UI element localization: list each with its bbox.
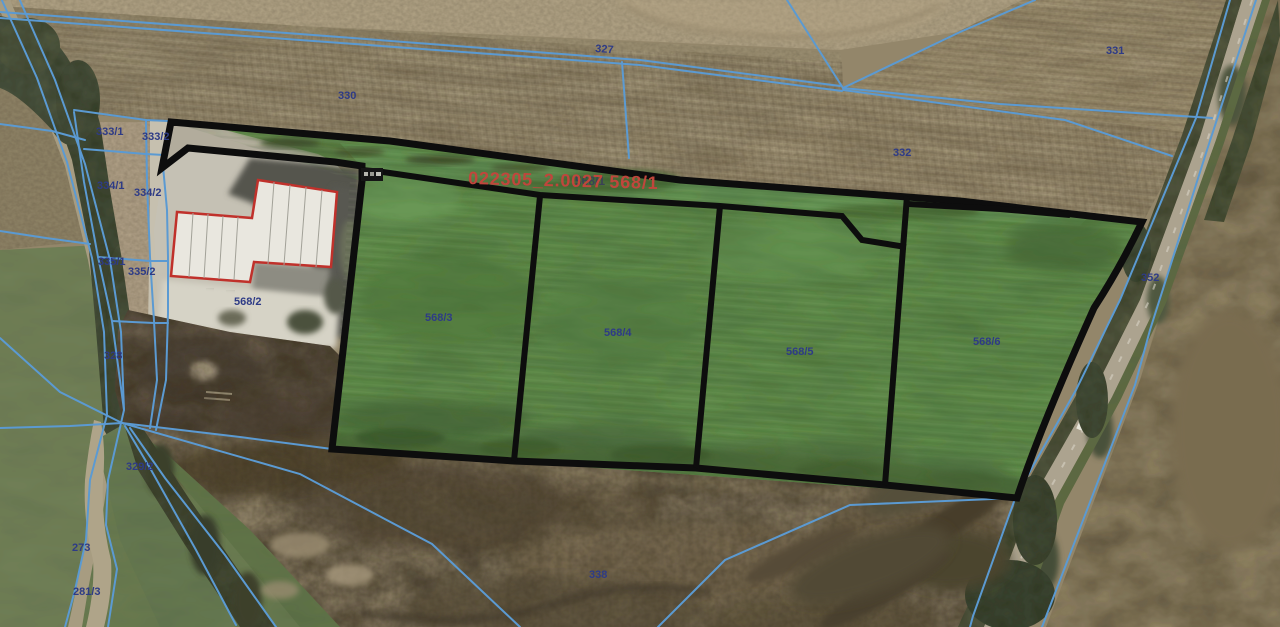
- svg-text:568/3: 568/3: [425, 312, 453, 324]
- svg-text:335/1: 335/1: [98, 256, 126, 268]
- svg-text:329/2: 329/2: [126, 461, 154, 473]
- svg-text:568/2: 568/2: [234, 296, 262, 308]
- svg-text:281/3: 281/3: [73, 586, 101, 598]
- svg-text:331: 331: [1106, 45, 1124, 57]
- svg-text:332: 332: [893, 147, 911, 159]
- svg-text:352: 352: [1141, 272, 1159, 284]
- svg-text:568/6: 568/6: [973, 336, 1001, 348]
- svg-text:568/4: 568/4: [604, 327, 632, 339]
- svg-text:334/2: 334/2: [134, 187, 162, 199]
- svg-text:568/5: 568/5: [786, 346, 814, 358]
- svg-text:273: 273: [72, 542, 90, 554]
- svg-text:333/1: 333/1: [96, 126, 124, 138]
- svg-text:333/2: 333/2: [142, 131, 170, 143]
- svg-text:335/2: 335/2: [128, 266, 156, 278]
- svg-text:327: 327: [595, 43, 614, 56]
- svg-text:328: 328: [104, 350, 122, 362]
- svg-text:334/1: 334/1: [97, 180, 125, 192]
- svg-text:338: 338: [589, 569, 607, 581]
- svg-text:330: 330: [338, 90, 356, 102]
